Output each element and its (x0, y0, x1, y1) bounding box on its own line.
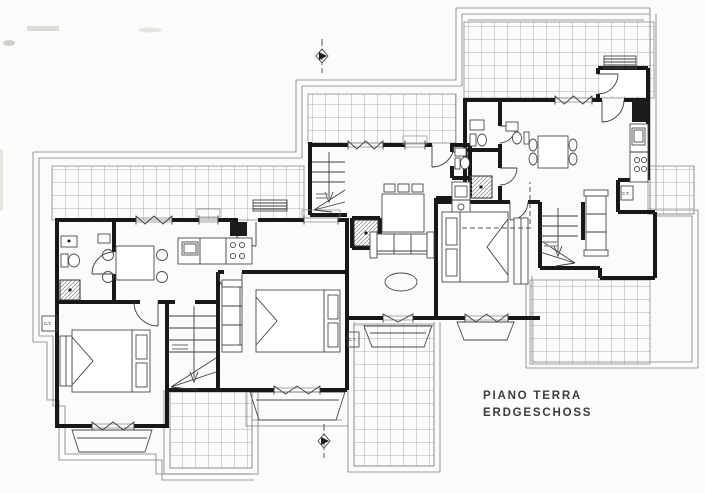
window-glazing (92, 424, 134, 428)
sofa (427, 232, 434, 258)
toilet-tank (455, 158, 460, 169)
chair (103, 250, 114, 261)
sofa (584, 190, 608, 196)
shower-drain (364, 231, 367, 234)
entrance-steps-awning (457, 322, 514, 340)
window-glazing (274, 388, 320, 392)
terrace-tiles-bottom-left (170, 392, 252, 468)
sofa (222, 287, 242, 345)
chair (157, 250, 168, 261)
scan-speck (138, 28, 162, 33)
sofa (370, 232, 377, 258)
toilet-tank (524, 132, 529, 144)
faucet (68, 240, 71, 243)
sofa (584, 250, 608, 256)
chair (384, 184, 395, 192)
rug (385, 273, 417, 291)
double-bed (256, 290, 340, 352)
double-bed (442, 212, 508, 282)
terrace-tiles-top-left (52, 166, 304, 220)
toilet-bowl (513, 132, 522, 144)
terrace-tiles-middle-top (308, 94, 456, 143)
window-jambs (465, 314, 508, 323)
sink (470, 120, 484, 130)
ct-label: C.T. (349, 337, 356, 342)
double-bed (72, 330, 150, 392)
bidet (98, 234, 110, 243)
window-insect-screen-zigzag (274, 386, 320, 394)
stair-treads (540, 216, 578, 266)
chair (412, 184, 423, 192)
sofa (222, 280, 242, 287)
window-jambs (92, 422, 134, 431)
plan-layers: C.T.C.T.C.T. (0, 8, 698, 480)
stair-note-ticks (316, 194, 330, 198)
toilet-tank (61, 254, 68, 267)
scan-speck (3, 40, 15, 46)
shower-drain (479, 185, 482, 188)
door-swing (510, 202, 528, 220)
chair (529, 153, 537, 165)
stair-treads (312, 162, 345, 212)
kitchen-tall-unit (230, 222, 247, 236)
window-insect-screen-zigzag (465, 314, 508, 322)
door-swing (92, 252, 114, 274)
toilet-bowl (461, 157, 470, 169)
door-swing (602, 100, 624, 122)
dining-table (382, 194, 424, 232)
shower-drain (68, 288, 71, 291)
floorplan-page: { "title_block": { "line1": "PIANO TERRA… (0, 0, 705, 493)
window-insect-screen-zigzag (383, 314, 413, 322)
title-block: PIANO TERRA ERDGESCHOSS (483, 388, 592, 422)
window-glazing (304, 218, 338, 222)
door-swing (134, 302, 158, 326)
boundary-outline (33, 152, 39, 342)
section-marker-top (316, 39, 328, 73)
stair-arrow (554, 208, 562, 256)
window-insect-screen-zigzag (92, 422, 134, 430)
dining-table (116, 246, 154, 280)
chair (569, 153, 577, 165)
plan-title-german: ERDGESCHOSS (483, 405, 592, 422)
terrace-tiles-right-patch (648, 166, 694, 214)
section-marker-bottom (318, 424, 330, 458)
floor-plan-drawing: C.T.C.T.C.T. (0, 0, 705, 493)
window-jambs (274, 386, 320, 395)
kitchen-tall-unit (632, 100, 648, 122)
entrance-steps-awning (72, 430, 152, 452)
scan-speck (27, 26, 59, 31)
window-jambs (383, 314, 413, 323)
scan-speck (0, 150, 3, 210)
sofa (222, 345, 242, 352)
chair (157, 272, 168, 283)
terrace-tiles-bottom-middle (354, 324, 434, 466)
sink (455, 148, 466, 156)
ct-label: C.T. (44, 321, 51, 326)
toilet-bowl (69, 254, 80, 267)
entrance-steps-awning (250, 392, 345, 420)
toilet-bowl (478, 134, 487, 146)
chair (103, 272, 114, 283)
door-swing (500, 168, 517, 185)
sink (506, 122, 518, 131)
toilet-tank (470, 134, 476, 146)
dining-table (538, 136, 568, 168)
stair-note-ticks (172, 345, 188, 349)
stair-treads (168, 316, 216, 390)
ct-label: C.T. (622, 191, 629, 196)
terrace-tiles-bottom-right (530, 280, 650, 364)
window-glazing (465, 316, 508, 320)
sofa (586, 196, 606, 250)
window-glazing (405, 143, 425, 147)
chair (569, 139, 577, 151)
plan-title-italian: PIANO TERRA (483, 388, 592, 405)
boundary-outline (246, 390, 348, 426)
chair (398, 184, 409, 192)
chair (529, 139, 537, 151)
